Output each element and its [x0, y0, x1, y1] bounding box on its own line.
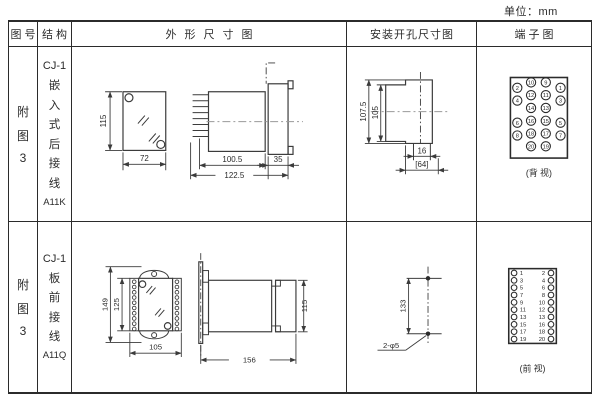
terminal-diagram-front: 1357911131517192468101213161820 (前 视) [477, 222, 591, 392]
terminal-caption-front: (前 视) [520, 363, 546, 374]
front-view [123, 92, 166, 151]
terminal-pins [193, 95, 209, 137]
mount-hole [152, 333, 157, 338]
dim-front-width: 72 [140, 154, 149, 163]
dim-outer-height: 107.5 [359, 101, 368, 121]
svg-text:2: 2 [542, 271, 545, 277]
svg-text:18: 18 [539, 330, 545, 336]
mirror-mark [138, 116, 149, 126]
svg-text:19: 19 [543, 144, 549, 150]
side-view [193, 81, 293, 155]
svg-text:5: 5 [559, 121, 562, 127]
dim-notch-width: 16 [418, 146, 427, 155]
svg-text:11: 11 [543, 93, 549, 99]
dim-side-length: 156 [243, 356, 256, 365]
header-fig-no: 图号 [9, 22, 38, 47]
svg-text:14: 14 [528, 106, 534, 112]
svg-text:4: 4 [542, 278, 546, 284]
header-install: 安装开孔尺寸图 [347, 22, 477, 47]
front-view [130, 270, 181, 338]
relay-code: A11K [43, 197, 66, 208]
svg-text:15: 15 [520, 322, 526, 328]
svg-text:11: 11 [520, 308, 526, 314]
install-drawing-a11q: 133 2-φ5 [347, 222, 476, 392]
relay-model: CJ-1 [43, 253, 66, 265]
svg-text:10: 10 [528, 80, 534, 86]
svg-text:6: 6 [516, 121, 519, 127]
row1-structure: CJ-1 嵌入式后接线 A11K [38, 47, 72, 222]
svg-text:15: 15 [543, 119, 549, 125]
dimension-table: 图号 结构 外形尺寸图 安装开孔尺寸图 端子图 附图3 CJ-1 嵌入式后接线 … [8, 20, 592, 394]
mount-type: 嵌入式后接线 [49, 77, 61, 191]
outline-drawing-a11k: 115 72 100.5 [72, 47, 346, 221]
mirror-mark [146, 286, 155, 294]
svg-text:10: 10 [539, 300, 545, 306]
svg-text:4: 4 [516, 99, 519, 105]
svg-text:17: 17 [543, 132, 549, 138]
svg-text:1: 1 [559, 86, 562, 92]
row2-outline-cell: 149 125 105 [72, 222, 347, 392]
svg-text:1: 1 [520, 271, 523, 277]
mount-hole [152, 271, 157, 276]
dim-inner-height: 105 [371, 105, 380, 119]
dim-panel-thickness: 35 [274, 155, 283, 164]
svg-text:7: 7 [520, 293, 523, 299]
terminal-block [509, 269, 557, 344]
unit-label: 单位：mm [504, 3, 558, 19]
fig-no-text: 附图3 [17, 276, 29, 338]
outline-drawing-a11q: 149 125 105 [72, 222, 346, 392]
row2-terminal-cell: 1357911131517192468101213161820 (前 视) [477, 222, 591, 392]
side-view [199, 262, 296, 344]
dim-inner-height: 125 [112, 298, 121, 311]
svg-text:3: 3 [559, 99, 562, 105]
row1-outline-cell: 115 72 100.5 [72, 47, 347, 222]
terminal-grid-front: 1357911131517192468101213161820 [511, 270, 554, 343]
row1-install-cell: 107.5 105 16 [64] [347, 47, 477, 222]
svg-text:20: 20 [528, 144, 534, 150]
svg-text:13: 13 [520, 315, 526, 321]
dim-front-height: 149 [100, 298, 109, 311]
svg-text:16: 16 [539, 322, 545, 328]
header-outline: 外形尺寸图 [72, 22, 347, 47]
mount-type: 板前接线 [49, 270, 61, 345]
row2-install-cell: 133 2-φ5 [347, 222, 477, 392]
relay-model: CJ-1 [43, 60, 66, 72]
svg-text:16: 16 [528, 119, 534, 125]
svg-text:9: 9 [520, 300, 523, 306]
dim-side-height: 115 [300, 300, 309, 312]
svg-text:13: 13 [543, 106, 549, 112]
svg-text:2: 2 [516, 86, 519, 92]
svg-text:13: 13 [539, 315, 545, 321]
svg-text:6: 6 [542, 286, 545, 292]
svg-text:8: 8 [516, 134, 519, 140]
svg-text:3: 3 [520, 278, 523, 284]
terminal-caption-rear: (背 视) [526, 167, 552, 178]
svg-text:19: 19 [520, 337, 526, 343]
dim-front-width: 105 [149, 343, 162, 352]
row1-fig-no: 附图3 [9, 47, 38, 222]
svg-text:5: 5 [520, 286, 523, 292]
row1-terminal-cell: 1012141618209111315171924681357 (背 视) [477, 47, 591, 222]
svg-text:7: 7 [559, 134, 562, 140]
dim-cut-width: [64] [415, 160, 428, 169]
fig-no-text: 附图3 [17, 103, 29, 165]
dim-hole-span: 133 [399, 300, 408, 313]
header-structure: 结构 [38, 22, 72, 47]
terminal-diagram-rear: 1012141618209111315171924681357 (背 视) [477, 47, 591, 221]
panel-line [266, 63, 275, 84]
svg-text:9: 9 [544, 80, 547, 86]
hole-spec-label: 2-φ5 [383, 341, 399, 350]
row2-structure: CJ-1 板前接线 A11Q [38, 222, 72, 392]
header-terminal: 端子图 [477, 22, 591, 47]
relay-code: A11Q [43, 350, 67, 361]
svg-text:12: 12 [539, 308, 545, 314]
install-drawing-a11k: 107.5 105 16 [64] [347, 47, 476, 221]
mirror-mark [155, 308, 164, 316]
mount-hole-bottom [426, 331, 430, 335]
dim-body-length: 100.5 [222, 155, 242, 164]
dim-total-length: 122.5 [224, 171, 244, 180]
mount-hole-top [426, 276, 430, 280]
manual-page: 单位：mm 图号 结构 外形尺寸图 安装开孔尺寸图 端子图 附图3 CJ-1 嵌… [0, 0, 600, 400]
terminal-strip-dots [132, 280, 178, 331]
svg-text:17: 17 [520, 330, 526, 336]
svg-text:18: 18 [528, 132, 534, 138]
svg-text:20: 20 [539, 337, 545, 343]
terminal-grid-rear: 1012141618209111315171924681357 [513, 78, 565, 151]
svg-text:12: 12 [528, 93, 534, 99]
row2-fig-no: 附图3 [9, 222, 38, 392]
svg-text:8: 8 [542, 293, 545, 299]
dim-front-height: 115 [99, 114, 108, 127]
